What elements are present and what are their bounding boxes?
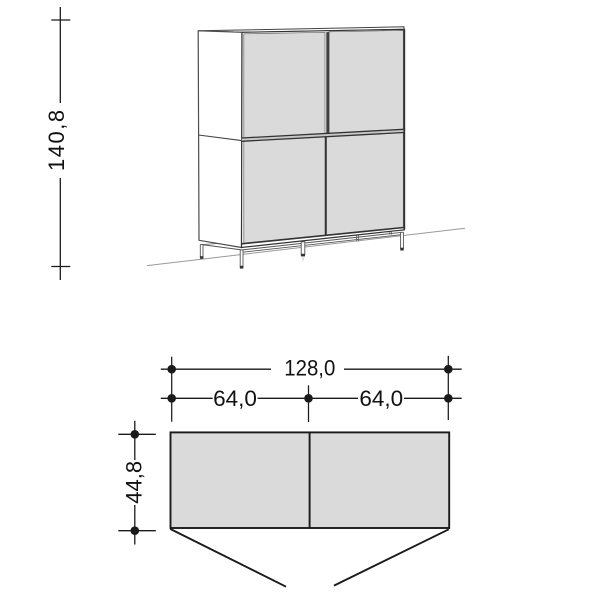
svg-text:140,8: 140,8 [44, 110, 69, 171]
svg-text:64,0: 64,0 [359, 386, 403, 411]
svg-text:64,0: 64,0 [213, 386, 257, 411]
svg-text:128,0: 128,0 [284, 355, 335, 380]
svg-text:44,8: 44,8 [122, 461, 147, 504]
